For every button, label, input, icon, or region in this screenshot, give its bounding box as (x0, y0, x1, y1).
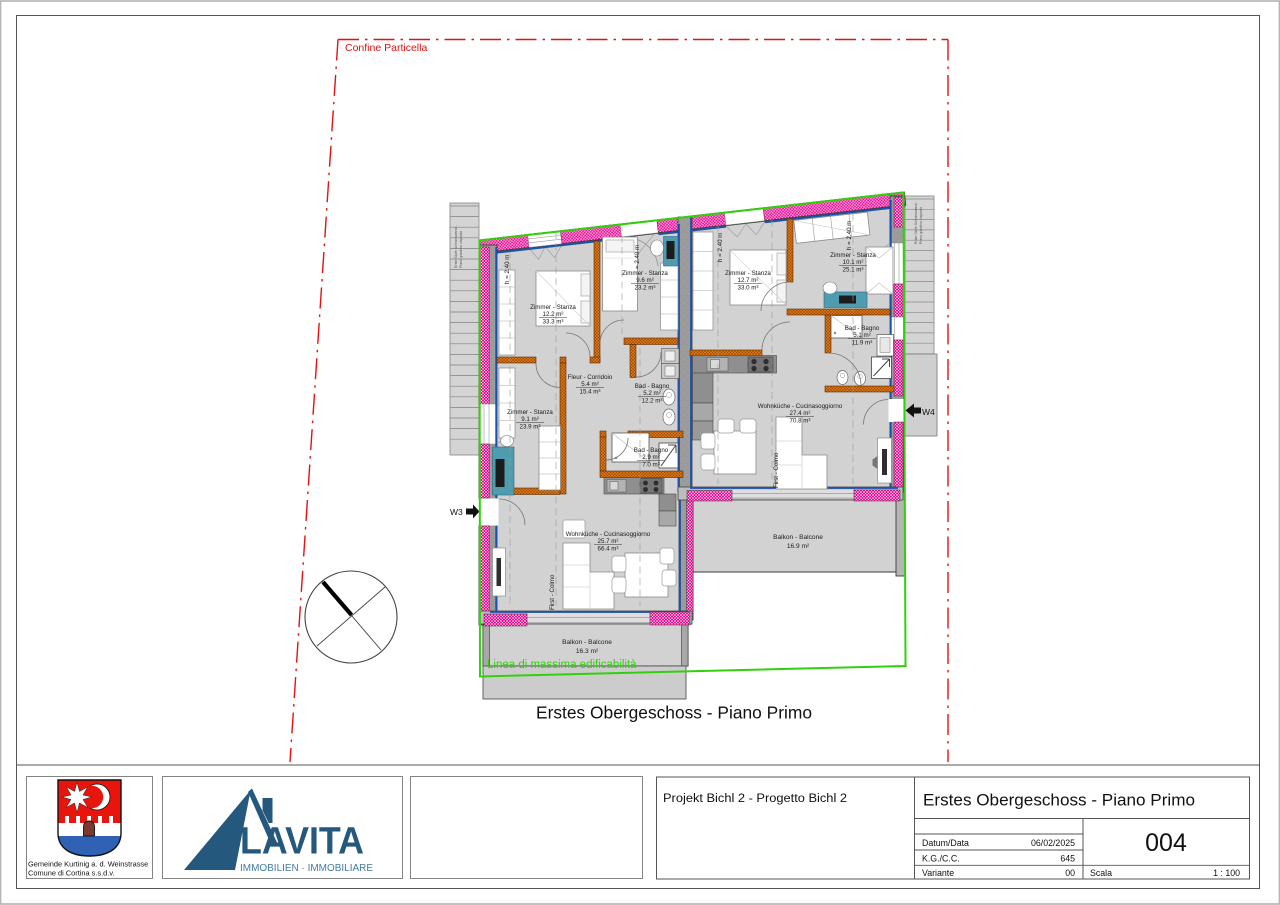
svg-text:Linea di massima edificabilità: Linea di massima edificabilità (487, 659, 637, 671)
svg-text:Erstes Obergeschoss - Piano Pr: Erstes Obergeschoss - Piano Primo (536, 703, 812, 723)
svg-text:9.6 m²: 9.6 m² (636, 277, 654, 284)
svg-text:First - Colmo: First - Colmo (549, 574, 556, 610)
svg-text:23.9 m³: 23.9 m³ (520, 424, 541, 431)
svg-text:Zimmer - Stanza: Zimmer - Stanza (830, 252, 876, 259)
svg-text:IMMOBILIEN · IMMOBILIARE: IMMOBILIEN · IMMOBILIARE (240, 863, 373, 874)
svg-text:h = 2.40 m: h = 2.40 m (717, 233, 724, 262)
svg-text:Wohnküche - Cucinasoggiorno: Wohnküche - Cucinasoggiorno (566, 531, 651, 538)
svg-text:9.1 m²: 9.1 m² (521, 416, 539, 423)
svg-text:h = 2.40 m: h = 2.40 m (504, 255, 511, 284)
svg-text:5.4 m²: 5.4 m² (581, 381, 599, 388)
svg-text:h = 2.40 m: h = 2.40 m (846, 221, 853, 250)
svg-text:Bad - Bagno: Bad - Bagno (634, 447, 669, 454)
svg-text:Wohnküche - Cucinasoggiorno: Wohnküche - Cucinasoggiorno (758, 403, 843, 410)
svg-text:Zimmer - Stanza: Zimmer - Stanza (622, 270, 668, 277)
svg-text:W3: W3 (450, 507, 463, 517)
svg-text:11.9 m³: 11.9 m³ (852, 340, 873, 347)
svg-text:Bad - Bagno: Bad - Bagno (845, 325, 880, 332)
svg-text:12.2 m³: 12.2 m³ (642, 398, 663, 405)
svg-text:Erste Stufe Schrankwand -: Erste Stufe Schrankwand - (914, 200, 918, 244)
svg-text:15.4 m³: 15.4 m³ (580, 389, 601, 396)
svg-text:06/02/2025: 06/02/2025 (1031, 838, 1075, 848)
svg-text:W4: W4 (922, 407, 935, 417)
svg-text:LAVITA: LAVITA (240, 821, 364, 863)
svg-text:16.9 m²: 16.9 m² (787, 543, 810, 550)
svg-text:Projekt Bichl 2 - Progetto Bic: Projekt Bichl 2 - Progetto Bichl 2 (663, 791, 847, 805)
svg-text:Fleur - Corridoio: Fleur - Corridoio (568, 374, 613, 381)
svg-text:12.2 m²: 12.2 m² (543, 311, 564, 318)
svg-text:33.0 m³: 33.0 m³ (738, 285, 759, 292)
svg-text:Zimmer - Stanza: Zimmer - Stanza (725, 270, 771, 277)
svg-text:Erste Stufe Schrankwand -: Erste Stufe Schrankwand - (454, 224, 458, 268)
svg-text:2.9 m²: 2.9 m² (642, 454, 660, 461)
svg-text:27.4 m²: 27.4 m² (790, 410, 811, 417)
svg-text:12.7 m²: 12.7 m² (738, 277, 759, 284)
svg-text:Balkon - Balcone: Balkon - Balcone (562, 639, 612, 646)
svg-text:Balkon - Balcone: Balkon - Balcone (773, 534, 823, 541)
svg-text:= 2.40 m: = 2.40 m (634, 245, 641, 269)
svg-text:Variante: Variante (922, 868, 954, 878)
svg-text:1 : 100: 1 : 100 (1213, 868, 1240, 878)
svg-text:10.1 m²: 10.1 m² (843, 259, 864, 266)
svg-text:16.3 m²: 16.3 m² (576, 648, 599, 655)
svg-text:Comune di Cortina s.s.d.v.: Comune di Cortina s.s.d.v. (28, 869, 115, 878)
svg-text:25.1 m³: 25.1 m³ (843, 267, 864, 274)
svg-text:645: 645 (1060, 854, 1075, 864)
svg-text:5.2 m²: 5.2 m² (643, 390, 661, 397)
svg-text:25.7 m²: 25.7 m² (598, 538, 619, 545)
svg-text:Gemeinde Kurtinig a. d. Weinst: Gemeinde Kurtinig a. d. Weinstrasse (28, 860, 148, 869)
svg-text:66.4 m³: 66.4 m³ (598, 546, 619, 553)
svg-text:5.1 m²: 5.1 m² (853, 332, 871, 339)
svg-text:33.3 m³: 33.3 m³ (543, 319, 564, 326)
svg-text:Bad - Bagno: Bad - Bagno (635, 383, 670, 390)
svg-text:K.G./C.C.: K.G./C.C. (922, 854, 960, 864)
svg-text:70.8 m³: 70.8 m³ (790, 418, 811, 425)
svg-text:23.2 m³: 23.2 m³ (635, 285, 656, 292)
svg-text:Zimmer - Stanza: Zimmer - Stanza (507, 409, 553, 416)
svg-text:7.0 m³: 7.0 m³ (642, 462, 660, 469)
svg-text:Scala: Scala (1090, 868, 1112, 878)
svg-text:Piano giardino visposto: Piano giardino visposto (459, 231, 463, 268)
svg-text:Confine Particella: Confine Particella (345, 42, 427, 54)
svg-text:004: 004 (1145, 829, 1187, 857)
svg-text:Piano giardino visposto: Piano giardino visposto (919, 207, 923, 244)
svg-text:Datum/Data: Datum/Data (922, 838, 969, 848)
svg-text:Zimmer - Stanza: Zimmer - Stanza (530, 304, 576, 311)
svg-text:First - Colmo: First - Colmo (773, 452, 780, 488)
svg-text:00: 00 (1065, 868, 1075, 878)
svg-text:Erstes Obergeschoss - Piano Pr: Erstes Obergeschoss - Piano Primo (923, 791, 1195, 810)
